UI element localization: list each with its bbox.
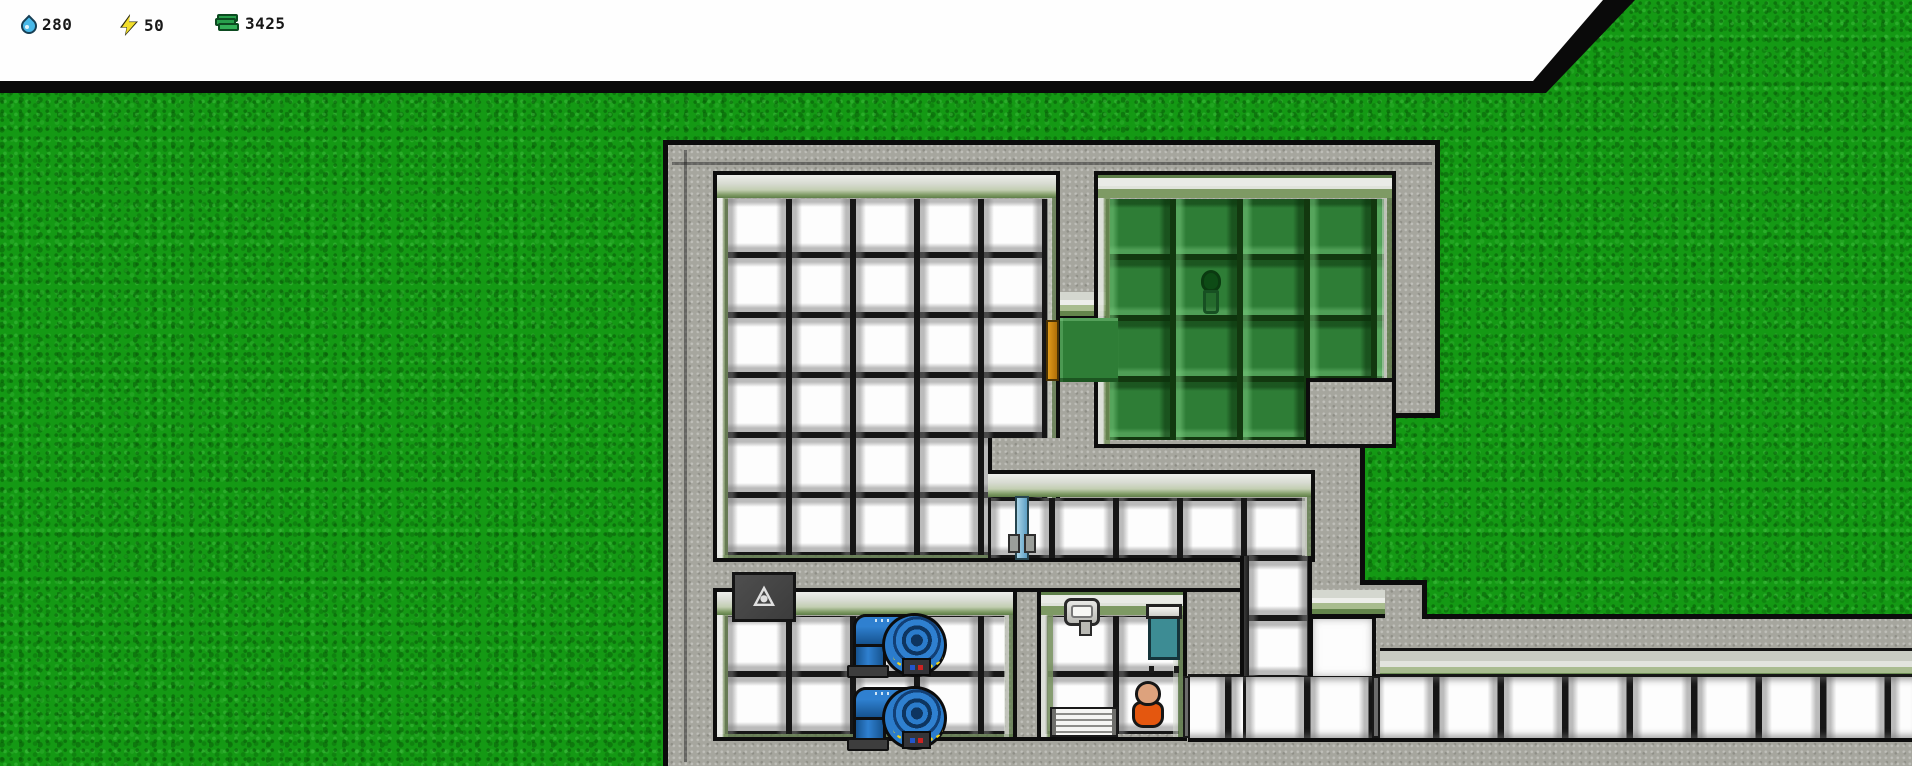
water-drop-icon bbox=[20, 14, 36, 35]
emblem-icon bbox=[752, 585, 776, 609]
corridor-post bbox=[1183, 676, 1190, 738]
corridor-post bbox=[1372, 676, 1380, 738]
passage-step-tile bbox=[1309, 616, 1376, 676]
plant-pot bbox=[1203, 290, 1219, 314]
pump-control-box bbox=[902, 731, 931, 749]
money-value: 3425 bbox=[245, 14, 286, 33]
lightning-bolt-icon bbox=[120, 14, 138, 36]
wall-inner-line-top bbox=[672, 162, 1432, 165]
garden-door[interactable] bbox=[1046, 320, 1059, 381]
wall-inner-line-left bbox=[684, 150, 687, 762]
water-value: 280 bbox=[42, 15, 72, 34]
money-counter: 3425 bbox=[215, 14, 286, 33]
garden-door-tile bbox=[1060, 318, 1118, 382]
power-counter: 50 bbox=[120, 14, 164, 36]
wall-sign[interactable] bbox=[732, 572, 796, 622]
pipe-rivets bbox=[875, 619, 892, 622]
worker-head bbox=[1135, 681, 1161, 706]
cabinet-lid bbox=[1146, 604, 1182, 619]
cabinet-body bbox=[1148, 619, 1180, 660]
money-stack-icon bbox=[215, 14, 239, 33]
storage-cabinet[interactable] bbox=[1146, 604, 1182, 673]
south-corridor-floor bbox=[1188, 674, 1912, 742]
planter[interactable] bbox=[1199, 270, 1223, 316]
passage-trim bbox=[1311, 590, 1385, 618]
wall-inner-line bbox=[1017, 737, 1041, 741]
pump-control-box bbox=[902, 658, 931, 676]
bench[interactable] bbox=[1050, 707, 1118, 737]
water-pump-1[interactable] bbox=[845, 610, 947, 676]
wall-chunk bbox=[988, 438, 1060, 474]
water-pump-2[interactable] bbox=[845, 683, 947, 749]
passage-vertical bbox=[1240, 556, 1312, 676]
pipe-flange bbox=[847, 665, 889, 678]
worker-unit[interactable] bbox=[1131, 681, 1165, 731]
pipe-rivets bbox=[875, 692, 892, 695]
room-hallway bbox=[988, 470, 1315, 562]
hallway-door[interactable] bbox=[1015, 496, 1029, 560]
garden-corner-wall-notch bbox=[1306, 378, 1392, 444]
pipe-flange bbox=[847, 738, 889, 751]
game-viewport: 280 50 3425 bbox=[0, 0, 1912, 766]
water-counter: 280 bbox=[20, 14, 72, 35]
wall-sink[interactable] bbox=[1064, 598, 1100, 626]
plant-icon bbox=[1201, 270, 1221, 292]
power-value: 50 bbox=[144, 16, 164, 35]
